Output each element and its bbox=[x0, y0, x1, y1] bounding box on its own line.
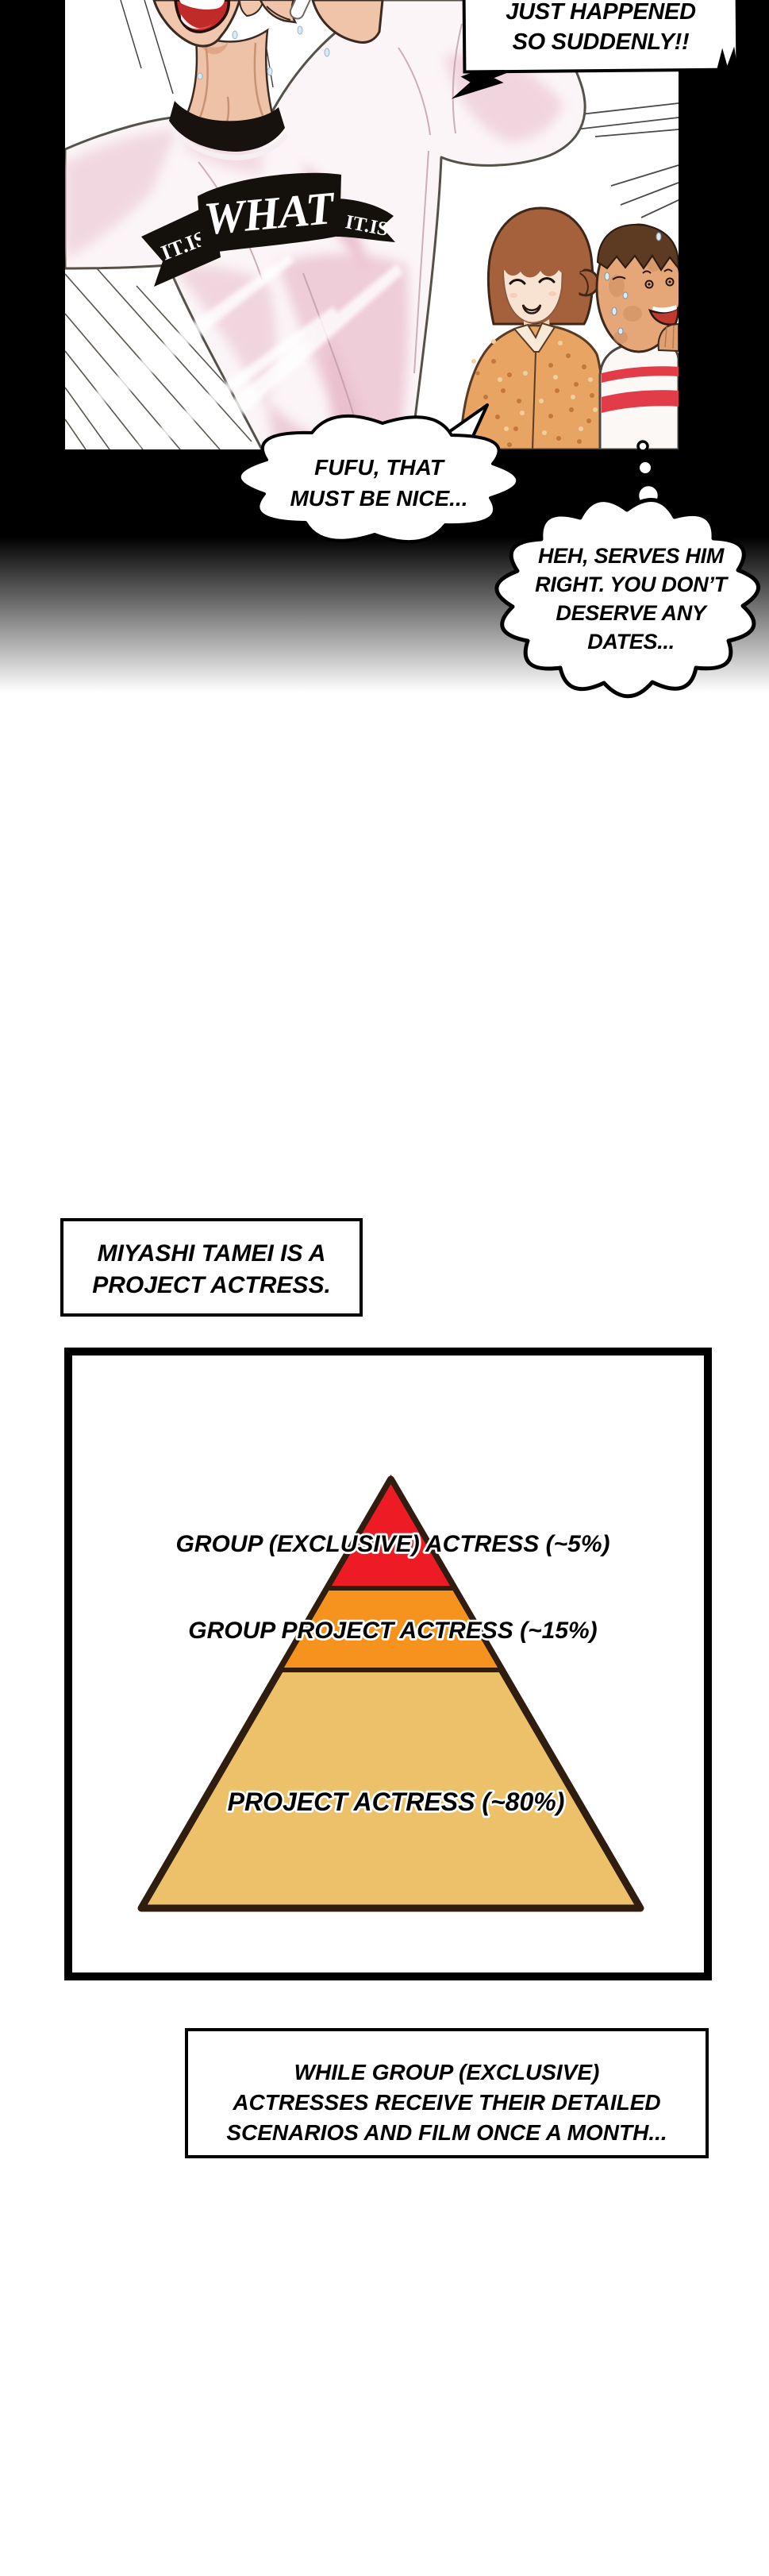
svg-text:PROJECT ACTRESS (~80%): PROJECT ACTRESS (~80%) bbox=[228, 1787, 565, 1816]
svg-text:GROUP (EXCLUSIVE) ACTRESS (~5%: GROUP (EXCLUSIVE) ACTRESS (~5%) bbox=[175, 1531, 609, 1557]
svg-text:GROUP PROJECT ACTRESS (~15%): GROUP PROJECT ACTRESS (~15%) bbox=[188, 1618, 597, 1644]
